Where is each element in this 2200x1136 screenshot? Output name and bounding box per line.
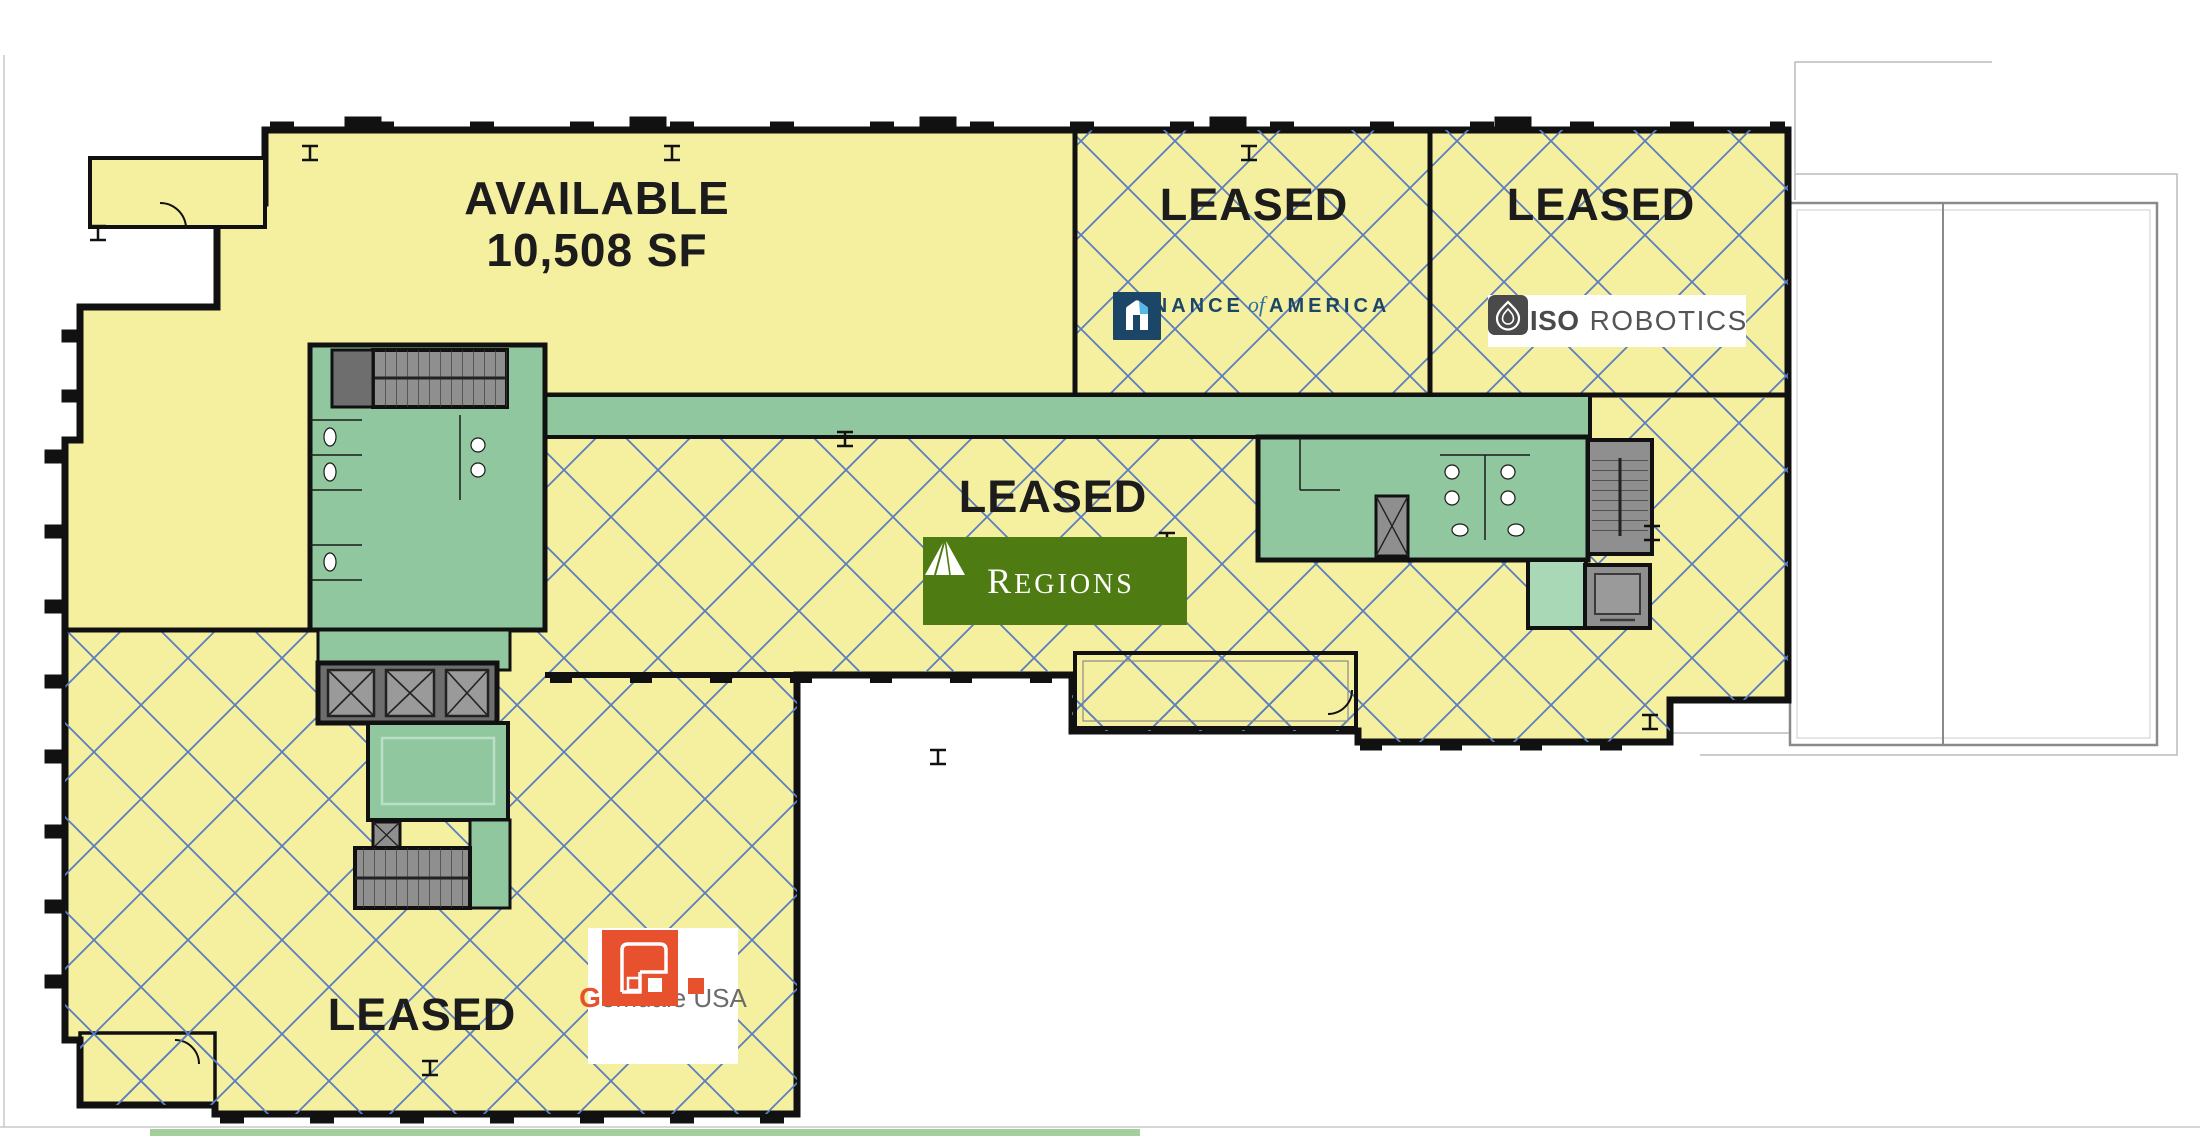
miso-robotics-suite-region bbox=[1430, 130, 1788, 395]
leased-label-regions: LEASED bbox=[903, 472, 1203, 522]
landscape-strip bbox=[150, 1129, 1140, 1136]
leased-label-finance-of-america: LEASED bbox=[1104, 180, 1404, 230]
leased-label-miso-robotics: LEASED bbox=[1451, 180, 1751, 230]
regions-logo: REGIONS bbox=[923, 537, 1187, 625]
leased-label-gemdale: LEASED bbox=[272, 990, 572, 1040]
miso-wordmark-light: ROBOTICS bbox=[1590, 305, 1748, 337]
foa-wordmark: FINANCEofAMERICA bbox=[1127, 292, 1390, 318]
room-light-green bbox=[1528, 560, 1586, 628]
floor-plan: AVAILABLE 10,508 SF LEASED LEASED LEASED… bbox=[0, 0, 2200, 1136]
gemdale-usa-logo: Gemdale USA bbox=[588, 928, 738, 1064]
roof-terrace bbox=[1790, 203, 2157, 745]
available-label: AVAILABLE 10,508 SF bbox=[397, 172, 797, 276]
regions-wordmark: REGIONS bbox=[987, 560, 1135, 602]
miso-robotics-logo: MISOROBOTICS bbox=[1488, 295, 1746, 347]
available-status: AVAILABLE bbox=[397, 172, 797, 224]
balcony-top-left bbox=[90, 158, 265, 227]
available-area: 10,508 SF bbox=[397, 224, 797, 276]
finance-of-america-logo: FINANCEofAMERICA bbox=[1113, 292, 1390, 318]
corridor bbox=[545, 395, 1590, 437]
finance-of-america-suite-region bbox=[1075, 130, 1430, 395]
